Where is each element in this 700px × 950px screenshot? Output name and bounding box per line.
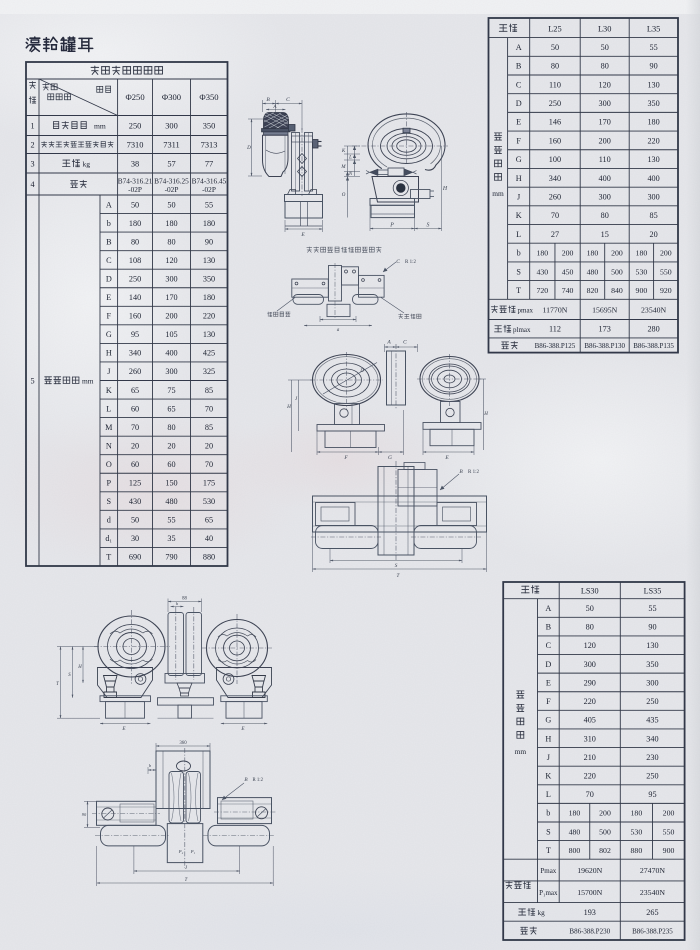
svg-text:D: D (545, 660, 551, 669)
svg-text:N: N (106, 441, 112, 450)
svg-text:50: 50 (167, 200, 175, 209)
svg-text:-02P: -02P (202, 185, 216, 194)
svg-text:180: 180 (203, 293, 215, 302)
svg-text:A: A (545, 604, 551, 613)
svg-text:C: C (106, 256, 112, 265)
svg-text:kg: kg (538, 909, 546, 917)
svg-text:350: 350 (203, 274, 215, 283)
svg-text:23540N: 23540N (640, 888, 665, 897)
svg-text:95: 95 (131, 330, 139, 339)
svg-text:230: 230 (646, 753, 658, 762)
svg-text:880: 880 (631, 846, 643, 855)
svg-text:80: 80 (601, 62, 609, 71)
svg-text:180: 180 (165, 219, 177, 228)
svg-text:S: S (516, 267, 521, 276)
svg-text:A: A (386, 340, 391, 346)
svg-text:E: E (546, 678, 551, 687)
svg-text:Φ350: Φ350 (199, 92, 218, 102)
svg-text:P: P (389, 223, 394, 229)
svg-text:140: 140 (129, 293, 141, 302)
svg-text:840: 840 (611, 286, 623, 295)
svg-text:P: P (107, 479, 112, 488)
svg-text:450: 450 (562, 267, 574, 276)
svg-text:130: 130 (646, 641, 658, 650)
svg-text:K: K (516, 211, 522, 220)
svg-text:23540N: 23540N (641, 305, 666, 314)
svg-text:15700N: 15700N (577, 888, 602, 897)
svg-text:L: L (516, 230, 521, 239)
svg-text:720: 720 (536, 286, 548, 295)
svg-text:250: 250 (646, 697, 658, 706)
svg-text:P₂: P₂ (178, 849, 184, 854)
svg-text:480: 480 (587, 267, 599, 276)
svg-text:175: 175 (203, 479, 215, 488)
svg-text:200: 200 (599, 809, 611, 818)
svg-text:55: 55 (167, 516, 175, 525)
svg-text:500: 500 (599, 827, 611, 836)
svg-text:820: 820 (587, 286, 599, 295)
svg-text:L30: L30 (598, 25, 612, 34)
svg-text:120: 120 (584, 641, 596, 650)
svg-text:K: K (106, 386, 112, 395)
svg-text:N: N (348, 172, 353, 177)
svg-text:3: 3 (30, 159, 34, 168)
svg-text:O: O (342, 193, 346, 198)
svg-text:200: 200 (562, 249, 574, 258)
svg-text:mm: mm (492, 189, 504, 198)
svg-text:Φ300: Φ300 (162, 92, 181, 102)
svg-text:200: 200 (165, 312, 177, 321)
svg-text:360: 360 (179, 741, 187, 746)
svg-text:800: 800 (569, 846, 581, 855)
svg-text:200: 200 (611, 249, 623, 258)
svg-text:L: L (348, 156, 352, 161)
svg-text:a: a (337, 327, 340, 333)
svg-text:75: 75 (167, 386, 175, 395)
svg-text:B: B (106, 237, 112, 246)
svg-text:80: 80 (601, 211, 609, 220)
svg-text:110: 110 (599, 155, 611, 164)
svg-text:300: 300 (647, 192, 659, 201)
svg-text:b: b (546, 809, 550, 818)
svg-text:55: 55 (650, 43, 658, 52)
svg-text:C: C (403, 340, 407, 346)
svg-text:200: 200 (663, 809, 675, 818)
svg-text:T: T (106, 553, 111, 562)
svg-text:400: 400 (647, 174, 659, 183)
svg-text:85: 85 (205, 423, 213, 432)
svg-text:500: 500 (611, 267, 623, 276)
svg-text:88: 88 (182, 597, 187, 602)
svg-text:F: F (546, 697, 551, 706)
svg-text:15: 15 (601, 230, 609, 239)
svg-text:15695N: 15695N (592, 305, 617, 314)
svg-text:L35: L35 (647, 25, 661, 34)
svg-text:802: 802 (599, 846, 611, 855)
svg-text:150: 150 (165, 479, 177, 488)
svg-text:H: H (286, 404, 291, 410)
svg-text:C: C (516, 80, 522, 89)
svg-text:G: G (516, 155, 522, 164)
svg-text:430: 430 (536, 267, 548, 276)
svg-text:180: 180 (631, 809, 643, 818)
svg-text:200: 200 (660, 249, 672, 258)
svg-text:900: 900 (663, 846, 675, 855)
svg-text:220: 220 (584, 697, 596, 706)
svg-text:19620N: 19620N (577, 866, 602, 875)
svg-text:120: 120 (165, 256, 177, 265)
svg-text:H: H (545, 734, 551, 743)
svg-text:S: S (546, 827, 551, 836)
svg-text:80: 80 (586, 623, 594, 632)
svg-text:7313: 7313 (201, 141, 218, 150)
svg-text:173: 173 (599, 325, 611, 334)
svg-text:340: 340 (646, 734, 658, 743)
svg-text:2: 2 (30, 141, 34, 150)
svg-text:65: 65 (205, 516, 213, 525)
svg-text:mm: mm (82, 377, 94, 386)
svg-text:Φ250: Φ250 (125, 92, 144, 102)
svg-text:90: 90 (648, 623, 656, 632)
svg-text:350: 350 (203, 122, 216, 131)
svg-text:T: T (516, 286, 521, 295)
svg-text:LS35: LS35 (644, 587, 662, 596)
svg-text:310: 310 (584, 734, 596, 743)
svg-text:220: 220 (584, 771, 596, 780)
svg-text:50: 50 (131, 516, 139, 525)
svg-text:105: 105 (165, 330, 177, 339)
svg-text:50: 50 (586, 604, 594, 613)
svg-text:O: O (106, 460, 112, 469)
svg-text:160: 160 (549, 136, 561, 145)
svg-text:70: 70 (205, 460, 213, 469)
svg-text:250: 250 (646, 771, 658, 780)
svg-text:B86-388.P130: B86-388.P130 (584, 342, 625, 350)
svg-text:F: F (107, 312, 112, 321)
svg-text:790: 790 (165, 553, 177, 562)
svg-text:C: C (546, 641, 552, 650)
svg-text:E: E (300, 232, 305, 238)
svg-text:220: 220 (647, 136, 659, 145)
svg-text:70: 70 (131, 423, 139, 432)
svg-text:Pmax: Pmax (540, 867, 556, 875)
svg-text:G: G (388, 455, 392, 461)
svg-text:280: 280 (647, 325, 659, 334)
svg-text:550: 550 (660, 267, 672, 276)
svg-text:7310: 7310 (127, 141, 144, 150)
svg-text:65: 65 (167, 404, 175, 413)
svg-text:1: 1 (30, 122, 34, 131)
svg-text:250: 250 (129, 274, 141, 283)
svg-text:80: 80 (551, 62, 559, 71)
svg-text:170: 170 (599, 118, 611, 127)
svg-text:M: M (340, 165, 346, 170)
svg-text:E: E (106, 293, 111, 302)
svg-text:100: 100 (549, 155, 561, 164)
svg-text:H: H (77, 665, 82, 670)
svg-text:kg: kg (83, 159, 91, 168)
svg-text:11770N: 11770N (543, 305, 568, 314)
svg-text:55: 55 (205, 200, 213, 209)
svg-text:90: 90 (650, 62, 658, 71)
svg-text:130: 130 (647, 80, 659, 89)
svg-text:435: 435 (646, 716, 658, 725)
svg-text:55: 55 (648, 604, 656, 613)
svg-text:20: 20 (167, 441, 175, 450)
svg-text:F: F (343, 455, 348, 461)
svg-text:B86-388.P230: B86-388.P230 (569, 927, 610, 935)
svg-text:H: H (106, 349, 112, 358)
svg-text:P₁: P₁ (190, 849, 196, 854)
svg-text:300: 300 (599, 192, 611, 201)
svg-text:60: 60 (167, 460, 175, 469)
svg-text:350: 350 (647, 99, 659, 108)
svg-text:D: D (106, 274, 112, 283)
svg-text:200: 200 (599, 136, 611, 145)
svg-text:690: 690 (129, 553, 141, 562)
svg-text:7311: 7311 (163, 141, 179, 150)
svg-text:-02P: -02P (165, 185, 179, 194)
svg-text:D: D (359, 369, 364, 374)
svg-text:H: H (516, 174, 522, 183)
svg-text:d₁: d₁ (105, 534, 112, 543)
svg-text:160: 160 (129, 312, 141, 321)
svg-text:530: 530 (636, 267, 648, 276)
svg-text:B86-388.P135: B86-388.P135 (633, 342, 674, 350)
svg-text:70: 70 (586, 790, 594, 799)
svg-text:340: 340 (129, 349, 141, 358)
svg-text:80: 80 (167, 237, 175, 246)
svg-text:b: b (107, 219, 111, 228)
svg-text:60: 60 (131, 404, 139, 413)
svg-text:30: 30 (131, 534, 139, 543)
svg-text:E: E (516, 118, 521, 127)
svg-text:R 1:2: R 1:2 (253, 778, 264, 783)
svg-text:57: 57 (167, 159, 175, 168)
svg-text:-02P: -02P (128, 185, 142, 194)
svg-text:250: 250 (549, 99, 561, 108)
svg-text:430: 430 (129, 497, 141, 506)
svg-text:110: 110 (549, 80, 561, 89)
svg-text:L: L (106, 404, 111, 413)
svg-text:C: C (286, 97, 290, 103)
svg-text:d: d (107, 516, 111, 525)
svg-text:120: 120 (599, 80, 611, 89)
svg-text:265: 265 (646, 908, 658, 917)
svg-text:400: 400 (599, 174, 611, 183)
svg-text:C: C (396, 259, 400, 265)
svg-text:85: 85 (650, 211, 658, 220)
svg-text:35: 35 (167, 534, 175, 543)
svg-text:530: 530 (203, 497, 215, 506)
svg-text:4: 4 (30, 180, 34, 189)
svg-text:S: S (427, 223, 430, 229)
svg-text:40: 40 (205, 534, 213, 543)
svg-text:27: 27 (551, 230, 559, 239)
svg-text:300: 300 (646, 678, 658, 687)
svg-text:G: G (545, 716, 551, 725)
svg-text:180: 180 (536, 249, 548, 258)
svg-text:70: 70 (551, 211, 559, 220)
svg-text:R 1:2: R 1:2 (405, 260, 416, 265)
svg-text:125: 125 (129, 479, 141, 488)
svg-text:180: 180 (636, 249, 648, 258)
svg-text:130: 130 (203, 256, 215, 265)
svg-text:B86-388.P125: B86-388.P125 (535, 342, 576, 350)
svg-text:T: T (56, 682, 59, 687)
svg-text:H: H (442, 186, 448, 192)
svg-text:350: 350 (646, 660, 658, 669)
svg-text:325: 325 (203, 367, 215, 376)
svg-text:530: 530 (631, 827, 643, 836)
svg-text:A: A (516, 43, 522, 52)
svg-text:130: 130 (203, 330, 215, 339)
svg-text:300: 300 (165, 274, 177, 283)
svg-text:740: 740 (562, 286, 574, 295)
svg-text:300: 300 (599, 99, 611, 108)
svg-text:85: 85 (205, 386, 213, 395)
svg-text:108: 108 (129, 256, 141, 265)
svg-text:220: 220 (203, 312, 215, 321)
svg-text:300: 300 (165, 367, 177, 376)
svg-text:180: 180 (587, 249, 599, 258)
svg-text:60: 60 (131, 460, 139, 469)
svg-text:G: G (106, 330, 112, 339)
svg-text:400: 400 (165, 349, 177, 358)
svg-text:K: K (545, 771, 551, 780)
svg-text:880: 880 (203, 553, 215, 562)
svg-text:480: 480 (165, 497, 177, 506)
svg-text:260: 260 (129, 367, 141, 376)
svg-text:146: 146 (549, 118, 561, 127)
svg-text:50: 50 (601, 43, 609, 52)
svg-text:D: D (516, 99, 522, 108)
svg-text:920: 920 (660, 286, 672, 295)
svg-text:S: S (395, 563, 398, 569)
svg-text:LS30: LS30 (581, 587, 599, 596)
svg-text:70: 70 (205, 404, 213, 413)
svg-text:B: B (546, 623, 552, 632)
svg-text:260: 260 (549, 192, 561, 201)
svg-text:300: 300 (165, 122, 178, 131)
svg-text:B86-388.P235: B86-388.P235 (632, 927, 673, 935)
svg-text:plmax: plmax (513, 326, 531, 334)
svg-text:80: 80 (131, 237, 139, 246)
svg-text:480: 480 (569, 827, 581, 836)
svg-text:27470N: 27470N (640, 866, 665, 875)
svg-text:L25: L25 (548, 25, 562, 34)
svg-text:R 1:2: R 1:2 (468, 470, 479, 475)
svg-text:38: 38 (131, 159, 139, 168)
svg-text:50: 50 (131, 200, 139, 209)
svg-text:210: 210 (584, 753, 596, 762)
svg-text:425: 425 (203, 349, 215, 358)
svg-text:180: 180 (647, 118, 659, 127)
svg-text:H: H (483, 412, 488, 417)
svg-text:340: 340 (549, 174, 561, 183)
svg-text:F: F (516, 136, 521, 145)
svg-text:L: L (546, 790, 551, 799)
svg-text:405: 405 (584, 716, 596, 725)
svg-text:B: B (516, 62, 522, 71)
svg-text:D: D (246, 145, 251, 151)
svg-text:K: K (341, 149, 346, 154)
svg-text:95: 95 (648, 790, 656, 799)
svg-text:180: 180 (569, 809, 581, 818)
svg-text:P₁max: P₁max (539, 889, 558, 897)
svg-text:300: 300 (584, 660, 596, 669)
svg-text:T: T (185, 878, 188, 883)
svg-text:193: 193 (584, 908, 596, 917)
svg-text:180: 180 (203, 219, 215, 228)
svg-text:77: 77 (205, 159, 213, 168)
svg-text:E: E (444, 455, 449, 461)
svg-text:5: 5 (30, 377, 34, 386)
svg-text:180: 180 (129, 219, 141, 228)
svg-text:250: 250 (129, 122, 142, 131)
svg-text:S: S (107, 497, 112, 506)
svg-text:65: 65 (131, 386, 139, 395)
svg-text:80: 80 (167, 423, 175, 432)
svg-text:90: 90 (205, 237, 213, 246)
svg-text:M: M (105, 423, 113, 432)
svg-text:A: A (106, 200, 112, 209)
svg-text:b: b (517, 249, 521, 258)
svg-text:20: 20 (205, 441, 213, 450)
svg-text:170: 170 (165, 293, 177, 302)
svg-text:50: 50 (551, 43, 559, 52)
svg-text:900: 900 (636, 286, 648, 295)
svg-text:20: 20 (650, 230, 658, 239)
svg-text:pmax: pmax (518, 307, 534, 315)
svg-text:290: 290 (584, 678, 596, 687)
svg-text:20: 20 (131, 441, 139, 450)
svg-text:mm: mm (515, 747, 527, 756)
svg-text:550: 550 (663, 827, 675, 836)
svg-text:mm: mm (94, 122, 106, 131)
svg-text:112: 112 (549, 325, 561, 334)
svg-text:T: T (546, 846, 551, 855)
svg-text:130: 130 (647, 155, 659, 164)
